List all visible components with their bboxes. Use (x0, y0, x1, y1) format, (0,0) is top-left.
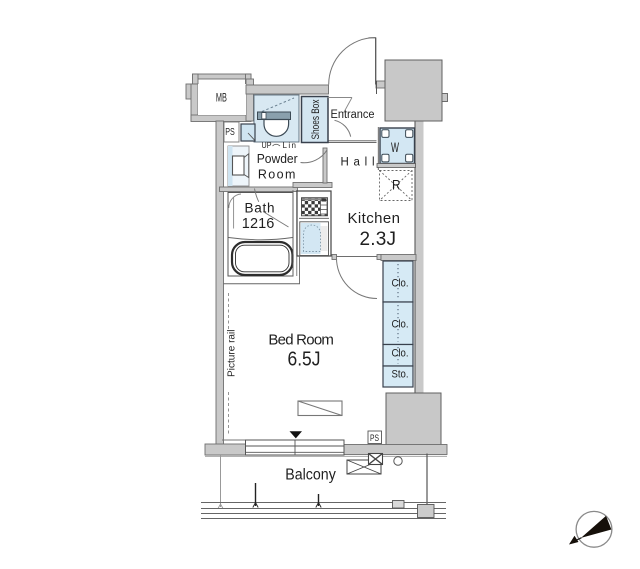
svg-text:Balcony: Balcony (285, 467, 336, 484)
svg-text:PS: PS (370, 433, 379, 444)
svg-text:Clo.: Clo. (392, 277, 409, 289)
svg-text:R: R (392, 176, 401, 192)
svg-text:W: W (391, 139, 399, 155)
svg-text:Lin: Lin (283, 141, 297, 150)
svg-text:2.3J: 2.3J (360, 229, 397, 250)
svg-text:Shoes Box: Shoes Box (310, 99, 322, 139)
svg-text:6.5J: 6.5J (288, 349, 321, 371)
svg-text:Picture rail: Picture rail (227, 330, 238, 378)
svg-text:Kitchen: Kitchen (348, 210, 401, 227)
svg-text:MB: MB (216, 91, 227, 105)
svg-text:Bed Room: Bed Room (268, 332, 334, 349)
svg-text:1216: 1216 (242, 216, 274, 232)
svg-text:Entrance: Entrance (331, 109, 375, 121)
svg-text:Clo.: Clo. (392, 347, 409, 359)
svg-text:Clo.: Clo. (392, 318, 409, 330)
svg-text:Powder: Powder (257, 151, 299, 166)
svg-text:UP: UP (262, 141, 272, 150)
svg-text:Bath: Bath (245, 201, 275, 216)
svg-text:Sto.: Sto. (392, 368, 409, 380)
svg-text:Room: Room (258, 168, 296, 182)
svg-text:PS: PS (225, 126, 235, 138)
